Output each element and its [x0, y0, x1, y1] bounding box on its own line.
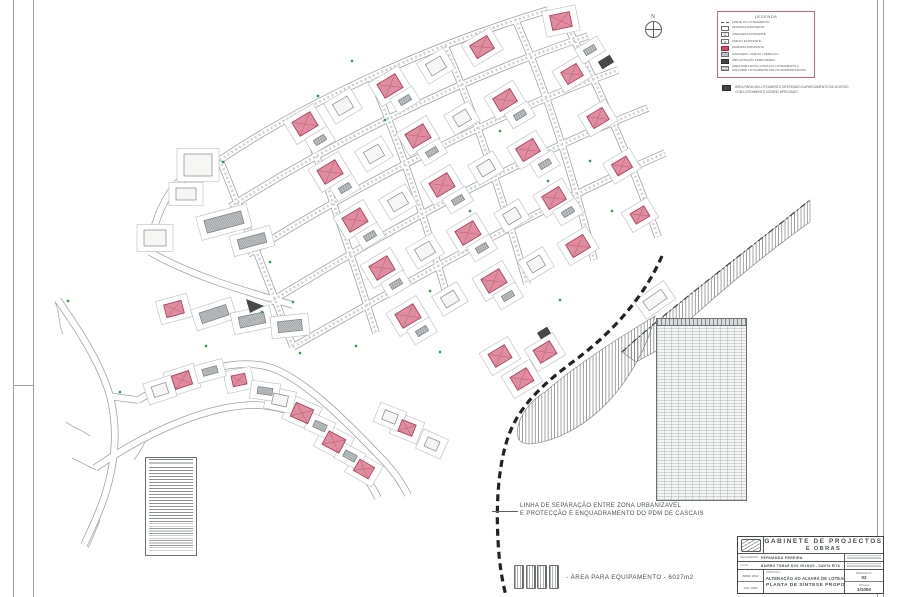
local-row: LOCAL BAIRRO TOMAR DOS VELHOS - SANTA RI…: [738, 562, 845, 570]
date-1: ABRIL 2002: [738, 570, 763, 582]
north-compass-icon: [645, 21, 662, 38]
tree-dot: [384, 119, 386, 121]
drawing-sheet: N LEGENDA LIMITE DO LOTEAMENTOMORADIA EX…: [0, 0, 900, 597]
tree-dot: [67, 300, 69, 302]
equipment-area-label: - ÁREA PARA EQUIPAMENTO - 6027m2: [566, 574, 694, 581]
tree-dot: [589, 160, 591, 162]
requerente-row: REQUERENTE FERNANDA PEREIRA: [738, 554, 845, 562]
existing-house-icon: [721, 26, 729, 31]
tree-dot: [355, 345, 357, 347]
existing-garage-icon: G: [721, 32, 729, 37]
separation-leader-line: [492, 511, 518, 512]
tree-dot: [205, 345, 207, 347]
scale-cell: ESCALA 1/1000: [845, 582, 883, 593]
office-logo-icon: [741, 539, 761, 552]
tree-dot: [547, 180, 549, 182]
garage-annex-building: [277, 319, 302, 332]
temporary-implantation-icon: [721, 59, 729, 64]
scale-value: 1/1000: [857, 587, 871, 592]
legend-item-temporary-implantation: IMPLANTAÇÃO TEMPORÁRIA: [721, 59, 811, 64]
office-name-line2: E OBRAS: [806, 546, 841, 552]
areas-table-notes: [149, 521, 193, 551]
proposta-cell: PROPOSTA ALTERAÇÃO AO ALVARÁ DE LOTEAMEN…: [764, 570, 845, 593]
drawing-info-cells: DESENHO Nº 02 ESCALA 1/1000: [845, 570, 883, 593]
tree-dot: [269, 261, 271, 263]
reference-microtext: [847, 563, 881, 568]
proposta-label: PROPOSTA: [766, 571, 842, 574]
tree-dot: [317, 95, 319, 97]
legend-item-proposed-house: MORADIA PROPOSTA: [721, 46, 811, 51]
legend-box: LEGENDA LIMITE DO LOTEAMENTOMORADIA EXIS…: [717, 11, 815, 78]
two-lots-area-icon: [721, 66, 729, 71]
legend-item-label: MORADIA PROPOSTA: [732, 46, 764, 50]
local-label: LOCAL: [740, 564, 758, 567]
equipment-hatch-bar-icon: [514, 565, 524, 589]
legend-item-existing-annex: AANEXO EXISTENTE: [721, 39, 811, 44]
legend-item-label: ANEXO EXISTENTE: [732, 40, 761, 44]
tree-dot: [429, 290, 431, 292]
tree-dot: [119, 391, 121, 393]
existing-annex-icon: A: [721, 39, 729, 44]
existing-house-building: [184, 154, 212, 176]
equipment-hatch-bar-icon: [526, 565, 536, 589]
existing-house-building: [144, 230, 166, 246]
tree-dot: [222, 161, 224, 163]
legend-note-text: ÁREA PARA UM LOTEAMENTO DESTINADO A APAR…: [735, 85, 848, 94]
tree-dot: [611, 210, 613, 212]
legend-item-label: MORADIA EXISTENTE: [732, 26, 764, 30]
proposta-line2: PLANTA DE SÍNTESE PROPOSTA: [766, 583, 842, 588]
terrain-scribble: [72, 458, 96, 470]
north-label: N: [642, 14, 664, 20]
proposta-line1: ALTERAÇÃO AO ALVARÁ DE LOTEAMENTO 1/92: [766, 576, 842, 581]
lot-data-table: [656, 318, 747, 501]
areas-table-header: [149, 459, 193, 466]
tree-dot: [292, 301, 294, 303]
parking-area-symbol-icon: [722, 85, 731, 91]
local-value: BAIRRO TOMAR DOS VELHOS - SANTA RITA: [761, 564, 840, 568]
office-name: GABINETE DE PROJECTOS E OBRAS: [764, 537, 883, 554]
legend-note: ÁREA PARA UM LOTEAMENTO DESTINADO A APAR…: [722, 85, 887, 94]
legend-title: LEGENDA: [721, 14, 811, 19]
legend-items: LIMITE DO LOTEAMENTOMORADIA EXISTENTEGGA…: [721, 21, 811, 73]
legend-item-existing-garage: GGARAGEM EXISTENTE: [721, 32, 811, 37]
left-margin-line-inner: [33, 0, 34, 597]
equipment-hatch-bar-icon: [537, 565, 547, 589]
proposed-house-icon: [721, 46, 729, 51]
garage-annex-pergola-icon: [721, 52, 729, 57]
tree-dot: [469, 210, 471, 212]
title-block: GABINETE DE PROJECTOS E OBRAS REQUERENTE…: [737, 536, 884, 594]
existing-house-building: [176, 188, 196, 200]
legend-item-label: LIMITE DO LOTEAMENTO: [732, 21, 770, 25]
separation-line-annotation: LINHA DE SEPARAÇÃO ENTRE ZONA URBANIZAVE…: [520, 503, 704, 518]
office-logo: [738, 537, 764, 554]
legend-item-two-lots-area: ÁREA PARA DOIS LOTES DO LOTEAMENTO A ADQ…: [721, 65, 811, 72]
terrain-scribble: [66, 422, 90, 436]
legend-item-label: IMPLANTAÇÃO TEMPORÁRIA: [732, 59, 775, 63]
tree-dot: [299, 352, 301, 354]
road: [110, 396, 138, 400]
left-margin-line-outer: [13, 0, 14, 597]
tree-dot: [499, 130, 501, 132]
legend-item-limit-line: LIMITE DO LOTEAMENTO: [721, 21, 811, 25]
requerente-value: FERNANDA PEREIRA: [761, 556, 803, 560]
legend-item-garage-annex-pergola: GARAGEM / ANEXO / PÉRGULA: [721, 52, 811, 57]
legend-item-label: GARAGEM EXISTENTE: [732, 33, 766, 37]
date-cells: ABRIL 2002 JUN. 2002: [738, 570, 764, 593]
tree-dot: [439, 351, 441, 353]
reference-cell: [845, 562, 883, 570]
limit-line-icon: [721, 22, 729, 23]
drawing-number-value: 02: [861, 575, 866, 580]
drawing-number-cell: DESENHO Nº 02: [845, 570, 883, 582]
north-arrow: N: [642, 14, 664, 38]
areas-table-rows: [149, 467, 193, 519]
legend-item-label: ÁREA PARA DOIS LOTES DO LOTEAMENTO A ADQ…: [732, 65, 811, 72]
left-margin-tick: [13, 385, 34, 386]
legend-item-label: GARAGEM / ANEXO / PÉRGULA: [732, 53, 778, 57]
process-cell: [845, 554, 883, 562]
office-name-line1: GABINETE DE PROJECTOS: [764, 538, 882, 545]
areas-summary-table: [145, 457, 197, 556]
tree-dot: [559, 299, 561, 301]
requerente-label: REQUERENTE: [740, 556, 758, 559]
tree-dot: [351, 60, 353, 62]
equipment-area-annotation: - ÁREA PARA EQUIPAMENTO - 6027m2: [514, 565, 694, 589]
date-2: JUN. 2002: [738, 582, 763, 593]
temporary-building: [598, 55, 613, 69]
tree-dot: [261, 311, 263, 313]
equipment-hatch-bar-icon: [549, 565, 559, 589]
legend-item-existing-house: MORADIA EXISTENTE: [721, 26, 811, 31]
process-microtext: [847, 555, 881, 560]
